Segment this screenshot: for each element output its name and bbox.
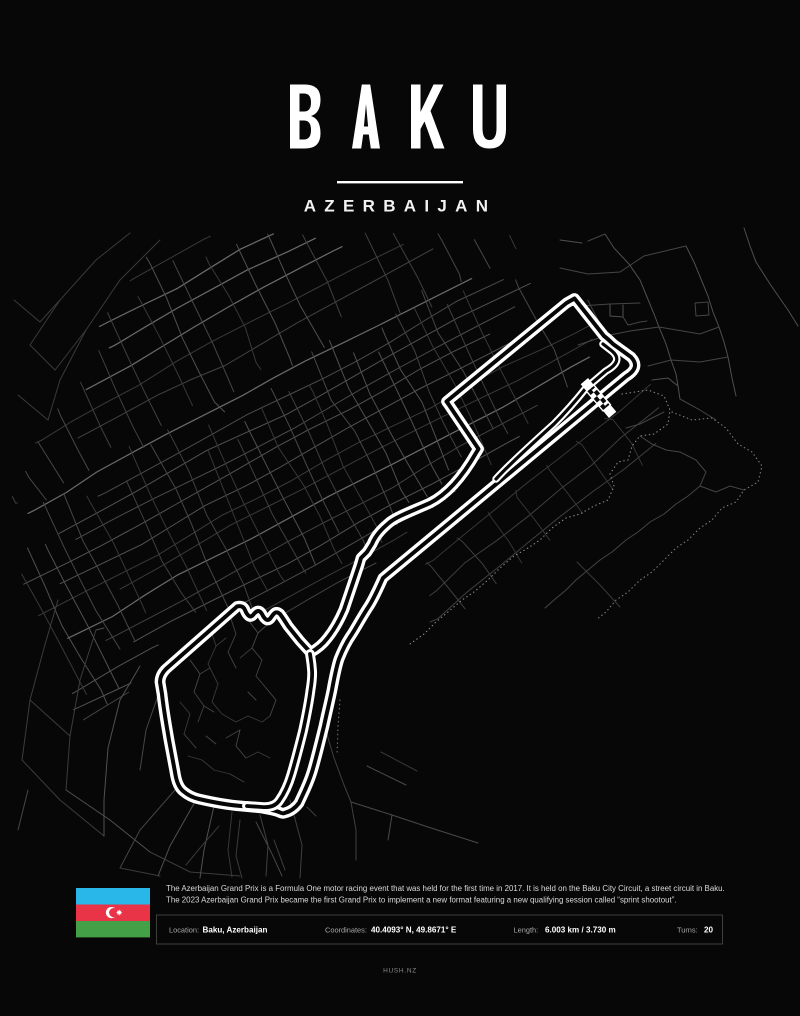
svg-text:6.003 km / 3.730 m: 6.003 km / 3.730 m [545,926,616,935]
svg-text:The Azerbaijan Grand Prix is a: The Azerbaijan Grand Prix is a Formula O… [166,884,725,893]
svg-text:Length:: Length: [514,926,539,935]
svg-text:40.4093° N, 49.8671° E: 40.4093° N, 49.8671° E [371,926,457,935]
svg-text:AZERBAIJAN: AZERBAIJAN [304,197,497,216]
svg-text:The 2023 Azerbaijan Grand Prix: The 2023 Azerbaijan Grand Prix became th… [166,896,677,905]
svg-text:Turns:: Turns: [677,926,698,935]
svg-text:Location:: Location: [169,926,199,935]
svg-text:20: 20 [704,926,714,935]
svg-text:Coordinates:: Coordinates: [325,926,367,935]
svg-text:HUSH.NZ: HUSH.NZ [383,968,417,975]
svg-text:Baku, Azerbaijan: Baku, Azerbaijan [203,926,268,935]
